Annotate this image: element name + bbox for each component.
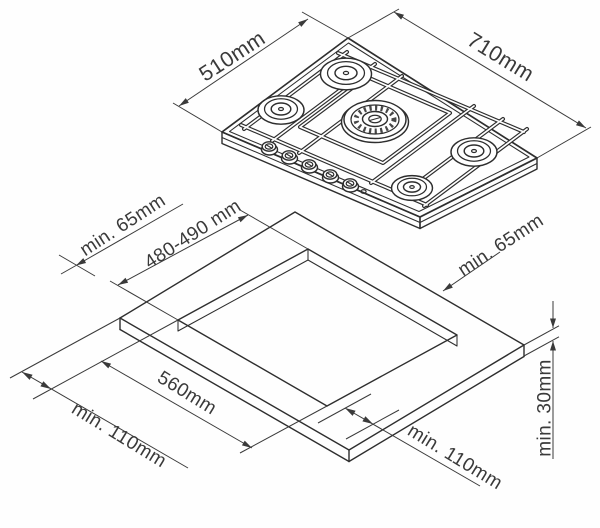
dim-clearance-rear-right: min. 65mm <box>443 210 548 291</box>
dim-worktop-thickness: min. 30mm <box>524 301 559 459</box>
control-knob <box>343 179 359 192</box>
arrowhead <box>40 381 51 389</box>
control-knob <box>323 170 339 183</box>
burner-front-center <box>392 176 433 201</box>
installation-diagram: min. 65mm 480-490 mm min. 65mm 560mm min… <box>0 0 600 528</box>
hob-depth-label: 510mm <box>195 26 270 86</box>
hob-width-label: 710mm <box>463 28 538 87</box>
clearance-front-right-label: min. 110mm <box>404 420 506 494</box>
burner-left <box>258 96 304 124</box>
wok-burner-center <box>342 101 409 143</box>
burner-back-center <box>321 58 372 90</box>
control-knob <box>282 151 298 164</box>
cutout-width-label: 560mm <box>154 367 221 419</box>
control-knob <box>302 160 318 173</box>
hob-illustration <box>222 38 537 229</box>
arrowhead <box>22 372 33 380</box>
control-knob <box>262 142 278 155</box>
dim-cutout-width: 560mm <box>33 320 327 453</box>
burner-right <box>451 138 497 166</box>
arrowhead <box>362 416 373 424</box>
clearance-rear-right-label: min. 65mm <box>454 210 547 281</box>
worktop-cutout-opening <box>178 249 457 406</box>
arrowhead <box>550 341 556 351</box>
clearance-front-left-label: min. 110mm <box>68 398 170 472</box>
worktop-thickness-label: min. 30mm <box>535 359 556 457</box>
arrowhead <box>345 408 356 416</box>
dim-clearance-front-right: min. 110mm <box>318 394 506 494</box>
arrowhead <box>550 319 556 329</box>
